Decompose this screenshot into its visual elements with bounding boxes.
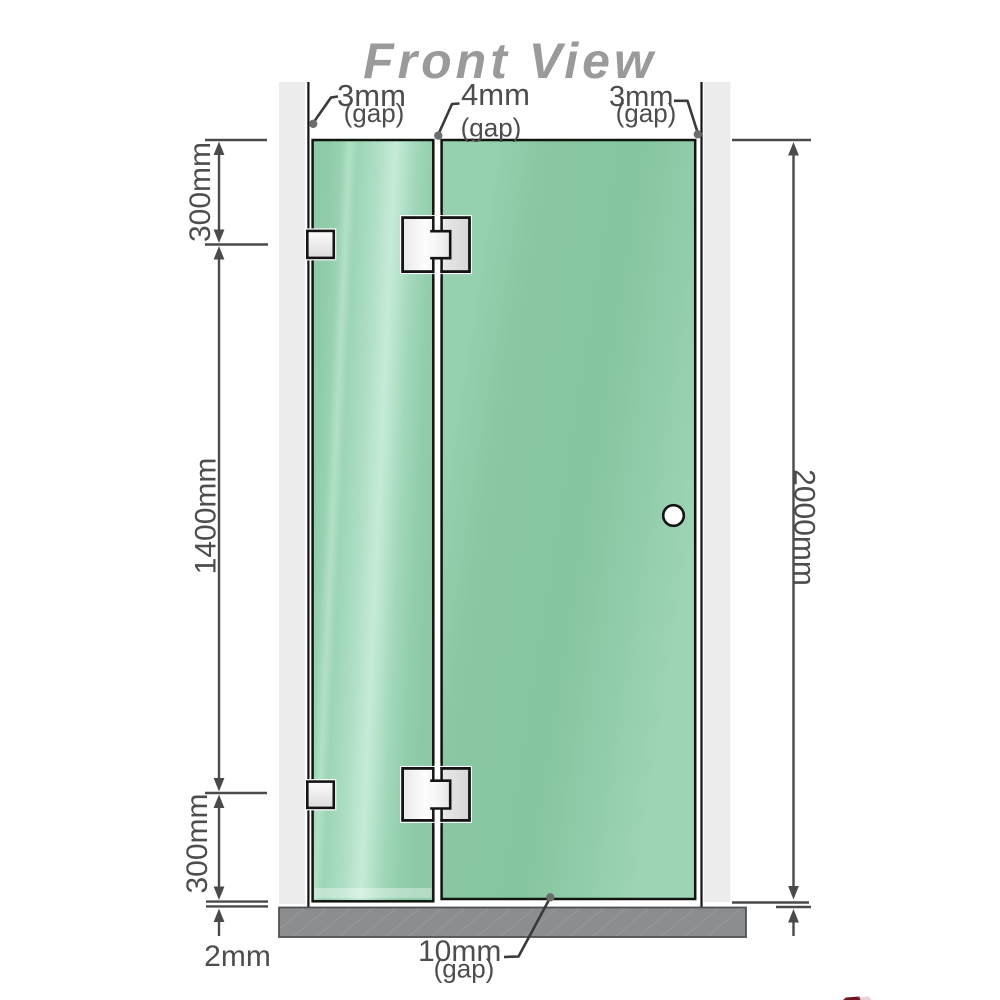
svg-text:(gap): (gap) xyxy=(434,954,495,984)
svg-text:(gap): (gap) xyxy=(616,98,677,128)
svg-text:1400mm: 1400mm xyxy=(190,458,223,575)
svg-text:300mm: 300mm xyxy=(184,142,217,242)
svg-text:2mm: 2mm xyxy=(204,940,271,973)
svg-text:(gap): (gap) xyxy=(344,98,405,128)
svg-text:2000mm: 2000mm xyxy=(788,469,821,586)
svg-text:4mm: 4mm xyxy=(461,77,530,112)
svg-text:(gap): (gap) xyxy=(461,113,522,143)
svg-text:300mm: 300mm xyxy=(181,793,214,893)
